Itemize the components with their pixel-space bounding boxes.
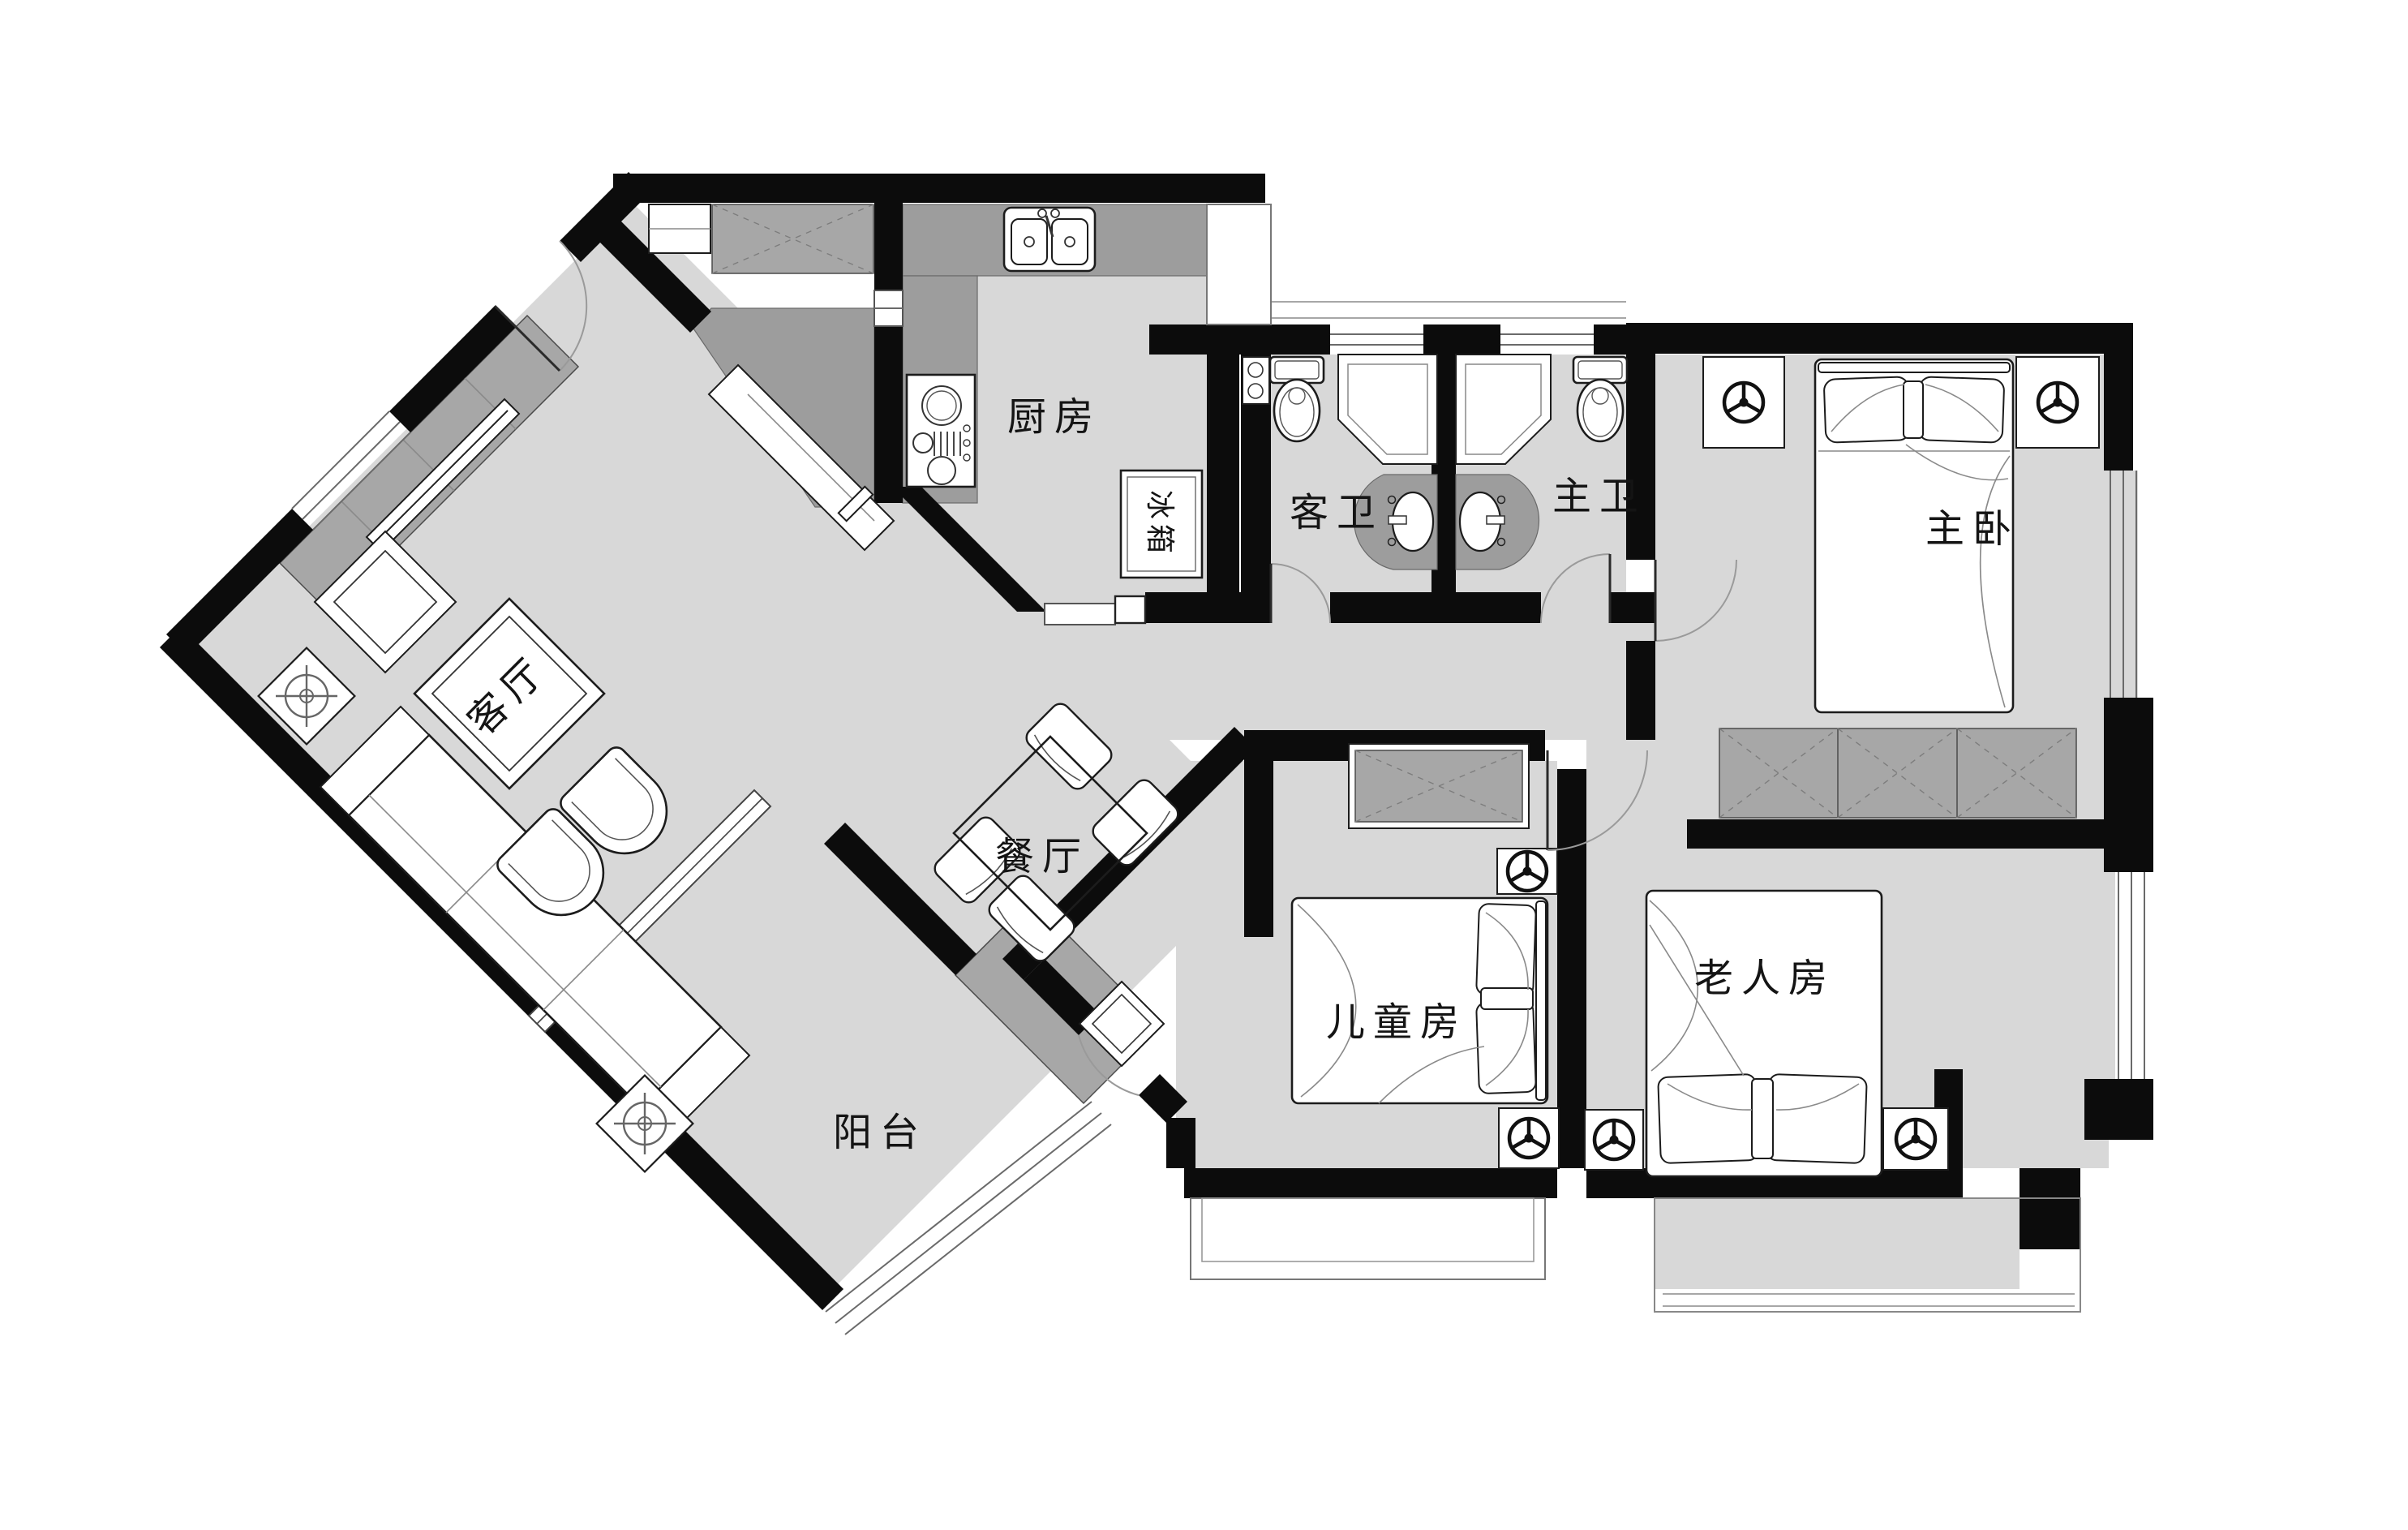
kitchen-pass-window-icon — [874, 290, 903, 326]
bedside-lamp-icon — [1724, 383, 1763, 422]
balcony-label: 阳台 — [833, 1111, 927, 1154]
kids-bay-window-icon — [1191, 1198, 1545, 1279]
kitchen-sink-icon — [1004, 208, 1095, 271]
master-window-bay-floor — [2104, 471, 2138, 698]
elder-side-bay-floor — [2076, 872, 2115, 1079]
floor-plan: 厨房 客卫 主卫 主卧 客厅 餐厅 儿童房 老人房 阳台 冰箱 — [0, 0, 2408, 1530]
elder-room-label: 老人房 — [1694, 957, 1835, 1000]
bedside-lamp-icon — [2038, 383, 2077, 422]
master-bathroom-label: 主卫 — [1552, 475, 1646, 518]
double-bed-icon — [1646, 891, 1882, 1176]
corner-pillar — [2020, 1168, 2080, 1249]
bedside-lamp-icon — [1508, 852, 1547, 891]
wardrobe-icon — [1719, 728, 2076, 818]
floor-plan-page: 厨房 客卫 主卫 主卧 客厅 餐厅 儿童房 老人房 阳台 冰箱 — [0, 0, 2408, 1530]
dining-room-label: 餐厅 — [995, 836, 1089, 879]
duct-shaft — [1207, 204, 1271, 324]
kitchen-label: 厨房 — [1007, 396, 1101, 439]
guest-bathroom-label: 客卫 — [1290, 492, 1384, 535]
cooktop-icon — [907, 375, 975, 487]
washer-cabinet — [1243, 357, 1269, 404]
fridge-label: 冰箱 — [1144, 490, 1176, 558]
elder-bay-floor — [1655, 1198, 2020, 1289]
bedside-lamp-icon — [1896, 1120, 1935, 1158]
toilet-icon — [1270, 357, 1324, 441]
toilet-icon — [1573, 357, 1627, 441]
master-bedroom-label: 主卧 — [1925, 508, 2020, 551]
bedside-lamp-icon — [1509, 1119, 1548, 1158]
bedside-lamp-icon — [1595, 1120, 1633, 1159]
wardrobe-icon — [1349, 744, 1529, 828]
elder-east-window-icon — [2118, 872, 2144, 1079]
kids-room-label: 儿童房 — [1326, 1001, 1467, 1044]
